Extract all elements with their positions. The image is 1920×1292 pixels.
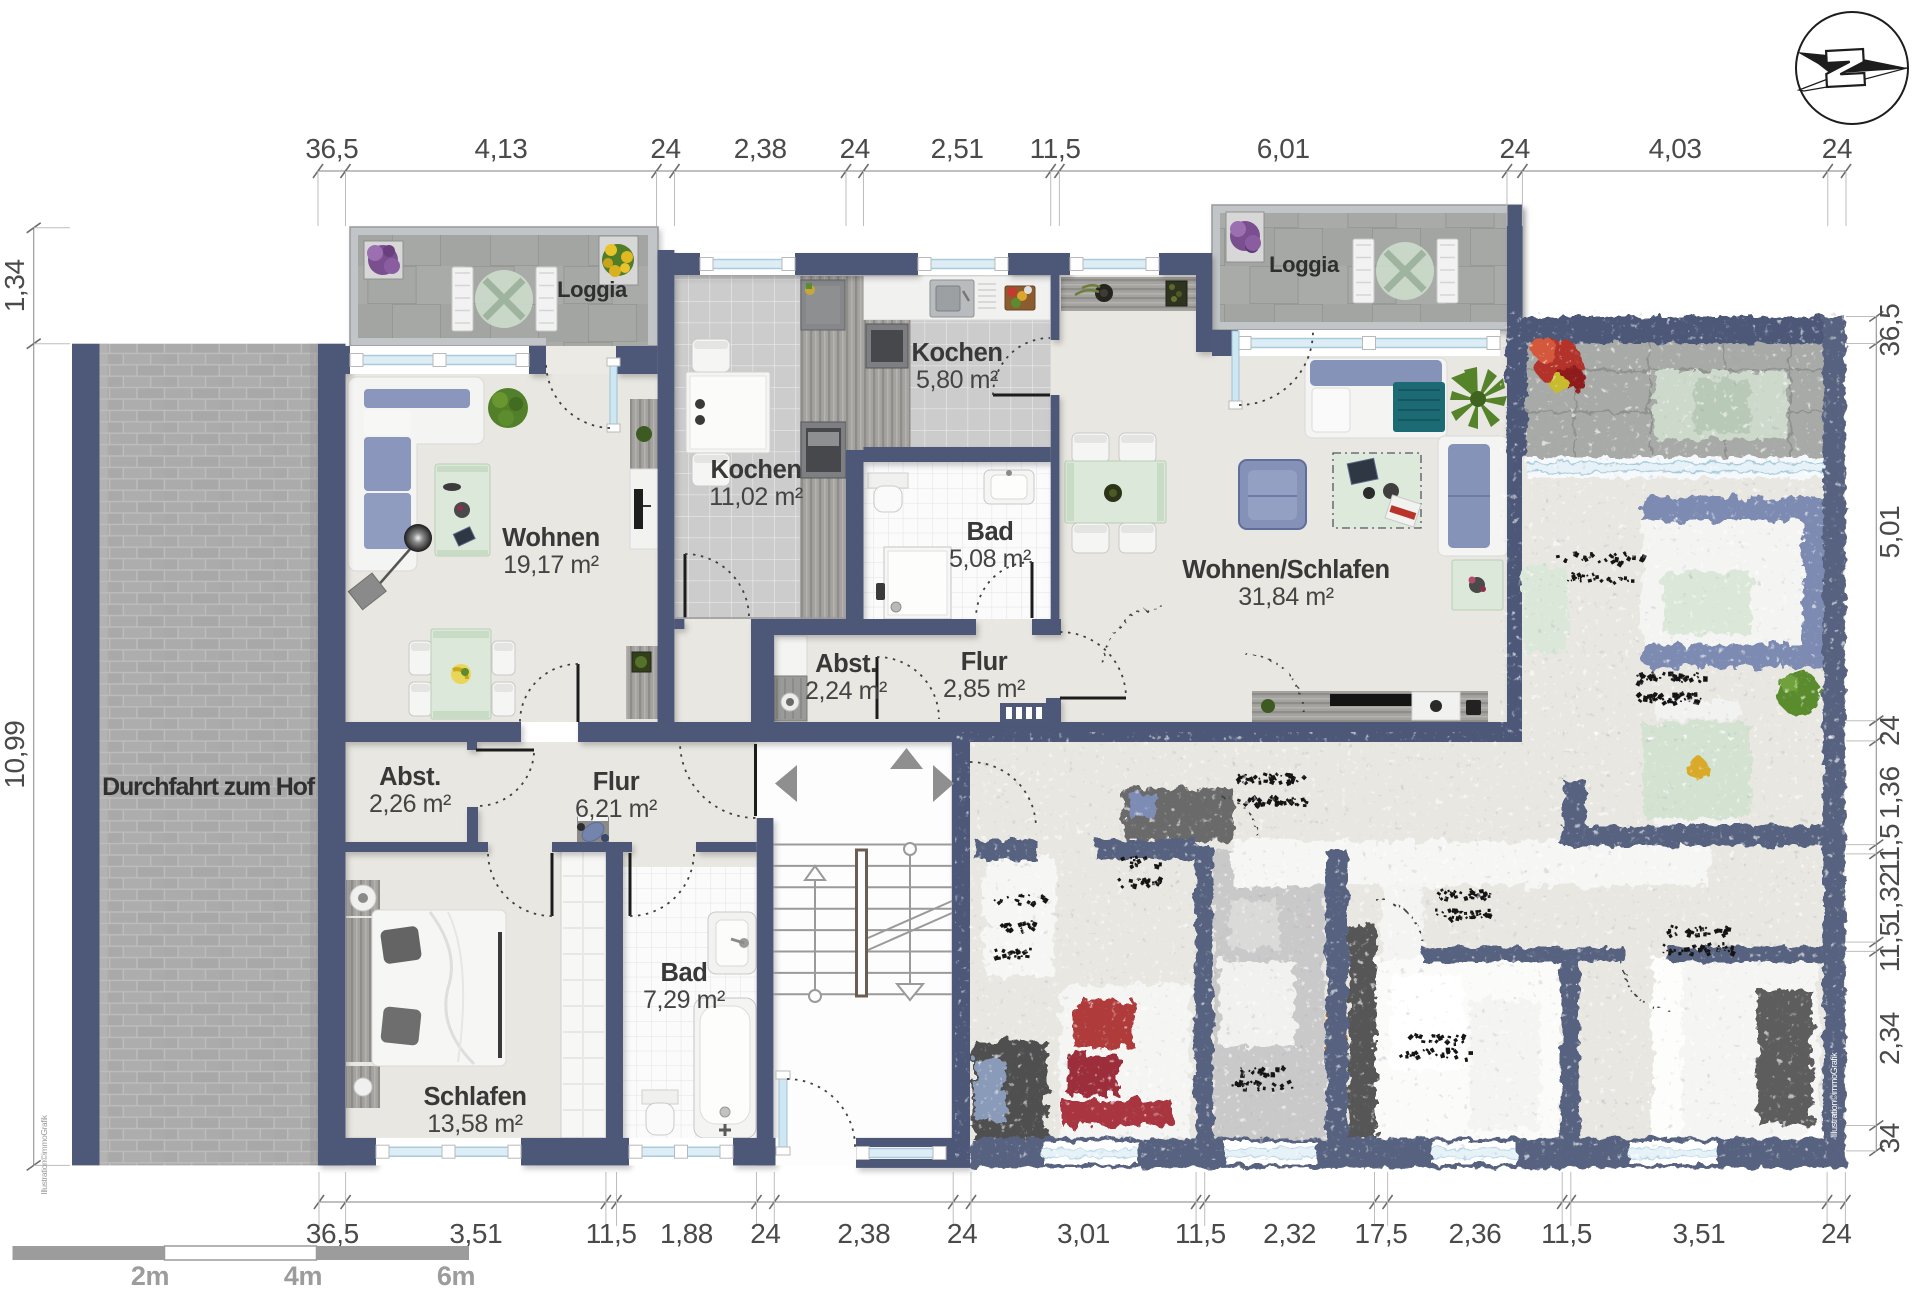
svg-text:24: 24 — [750, 1218, 780, 1249]
svg-text:24: 24 — [947, 1218, 977, 1249]
svg-text:2,85 m²: 2,85 m² — [943, 675, 1025, 703]
svg-text:1,88: 1,88 — [660, 1218, 713, 1249]
svg-text:1,36: 1,36 — [1874, 766, 1905, 819]
svg-text:6,01: 6,01 — [1257, 133, 1310, 164]
svg-text:2m: 2m — [131, 1261, 169, 1291]
svg-text:6m: 6m — [437, 1261, 475, 1291]
svg-text:24: 24 — [1874, 716, 1905, 746]
svg-text:5,01: 5,01 — [1874, 506, 1905, 559]
svg-text:11,5: 11,5 — [1030, 133, 1081, 164]
svg-text:36,5: 36,5 — [305, 133, 358, 164]
svg-text:2,26 m²: 2,26 m² — [369, 790, 451, 818]
svg-text:Schlafen: Schlafen — [423, 1083, 526, 1111]
svg-text:24: 24 — [1500, 133, 1530, 164]
svg-text:2,32: 2,32 — [1263, 1218, 1316, 1249]
svg-text:2,24 m²: 2,24 m² — [805, 677, 887, 705]
svg-text:Loggia: Loggia — [557, 277, 628, 302]
svg-text:Durchfahrt zum Hof: Durchfahrt zum Hof — [102, 773, 316, 801]
svg-text:2,34: 2,34 — [1874, 1012, 1905, 1065]
svg-text:2,38: 2,38 — [734, 133, 787, 164]
svg-text:11,5: 11,5 — [1541, 1218, 1592, 1249]
svg-text:24: 24 — [840, 133, 870, 164]
svg-text:5,08 m²: 5,08 m² — [949, 545, 1031, 573]
svg-text:24: 24 — [1822, 133, 1852, 164]
svg-text:Abst.: Abst. — [815, 650, 877, 678]
svg-text:Illustration©immoGrafik: Illustration©immoGrafik — [39, 1114, 49, 1194]
svg-text:4,13: 4,13 — [475, 133, 528, 164]
svg-text:3,51: 3,51 — [449, 1218, 502, 1249]
svg-text:3,01: 3,01 — [1057, 1218, 1110, 1249]
svg-text:24: 24 — [650, 133, 680, 164]
svg-text:Flur: Flur — [961, 648, 1008, 676]
svg-text:13,58 m²: 13,58 m² — [427, 1110, 523, 1138]
svg-text:5,80 m²: 5,80 m² — [916, 366, 998, 394]
svg-text:2,36: 2,36 — [1448, 1218, 1501, 1249]
svg-text:4,03: 4,03 — [1649, 133, 1702, 164]
svg-text:1,34: 1,34 — [0, 259, 30, 312]
svg-text:36,5: 36,5 — [306, 1218, 359, 1249]
svg-text:Abst.: Abst. — [379, 763, 441, 791]
svg-text:4m: 4m — [284, 1261, 322, 1291]
svg-text:2,38: 2,38 — [837, 1218, 890, 1249]
svg-text:1,32: 1,32 — [1874, 872, 1905, 925]
svg-text:Kochen: Kochen — [911, 339, 1002, 367]
svg-text:3,51: 3,51 — [1672, 1218, 1725, 1249]
svg-text:2,51: 2,51 — [931, 133, 984, 164]
svg-text:Kochen: Kochen — [710, 456, 801, 484]
svg-text:Wohnen/Schlafen: Wohnen/Schlafen — [1182, 556, 1389, 584]
svg-text:Bad: Bad — [661, 959, 708, 987]
svg-text:19,17 m²: 19,17 m² — [503, 551, 599, 579]
svg-text:Wohnen: Wohnen — [502, 524, 600, 552]
svg-text:11,5: 11,5 — [1874, 921, 1905, 972]
svg-text:11,02 m²: 11,02 m² — [709, 483, 803, 511]
svg-text:Bad: Bad — [967, 518, 1014, 546]
svg-text:11,5: 11,5 — [1175, 1218, 1226, 1249]
svg-text:Flur: Flur — [593, 768, 640, 796]
svg-text:24: 24 — [1821, 1218, 1851, 1249]
svg-text:7,29 m²: 7,29 m² — [643, 986, 725, 1014]
svg-text:Illustration©immoGrafik: Illustration©immoGrafik — [1829, 1052, 1839, 1137]
svg-text:36,5: 36,5 — [1874, 304, 1905, 357]
svg-text:34: 34 — [1874, 1123, 1905, 1153]
svg-text:11,5: 11,5 — [586, 1218, 637, 1249]
svg-text:Loggia: Loggia — [1269, 252, 1340, 277]
svg-text:31,84 m²: 31,84 m² — [1238, 583, 1334, 611]
svg-text:17,5: 17,5 — [1355, 1218, 1408, 1249]
svg-text:6,21 m²: 6,21 m² — [575, 795, 657, 823]
svg-text:10,99: 10,99 — [0, 721, 30, 789]
svg-text:11,5: 11,5 — [1874, 824, 1905, 875]
